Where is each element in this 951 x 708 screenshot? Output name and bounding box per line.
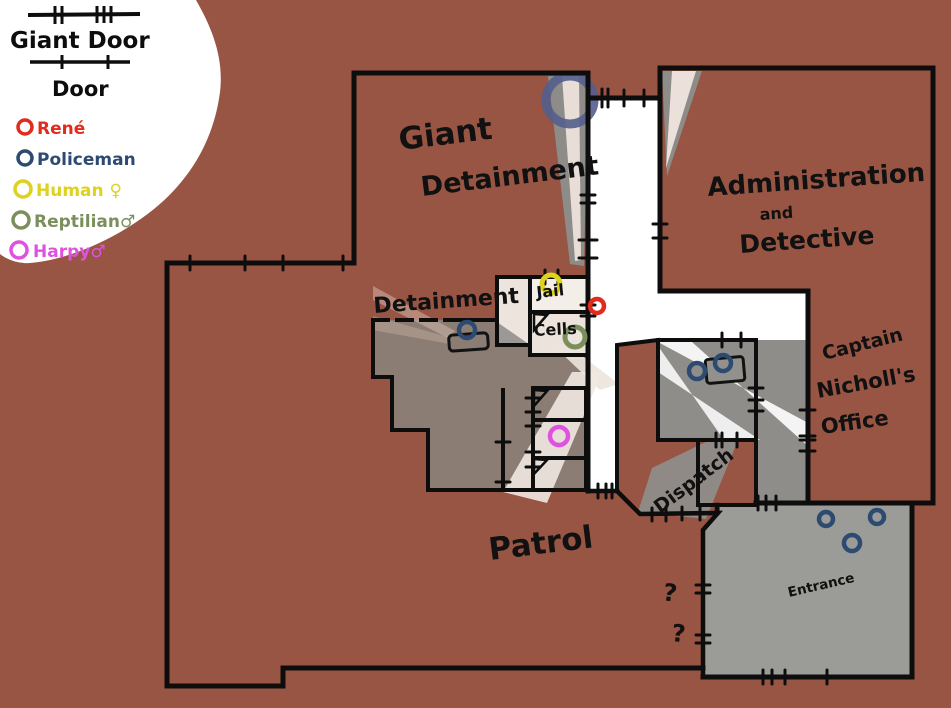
legend-harpy-label: Harpy♂ (33, 242, 106, 262)
legend-policeman-label: Policeman (37, 150, 136, 170)
legend-human-label: Human ♀ (36, 181, 122, 201)
legend-reptilian-label: Reptilian♂ (34, 212, 135, 232)
map-canvas: Giant Detainment Administration and Dete… (0, 0, 951, 708)
legend-giant-door-label: Giant Door (10, 28, 150, 54)
legend-rene-label: René (37, 119, 85, 139)
detainment-desk (448, 333, 488, 352)
question-mark-2: ? (670, 619, 686, 648)
legend-door-label: Door (52, 77, 109, 101)
dispatch-office-floor (658, 340, 756, 440)
label-administration-2: and (759, 203, 794, 224)
floorplan-page: Giant Detainment Administration and Dete… (0, 0, 951, 708)
label-jail-1: Jail (534, 280, 565, 302)
label-jail-2: Cells (533, 319, 577, 340)
